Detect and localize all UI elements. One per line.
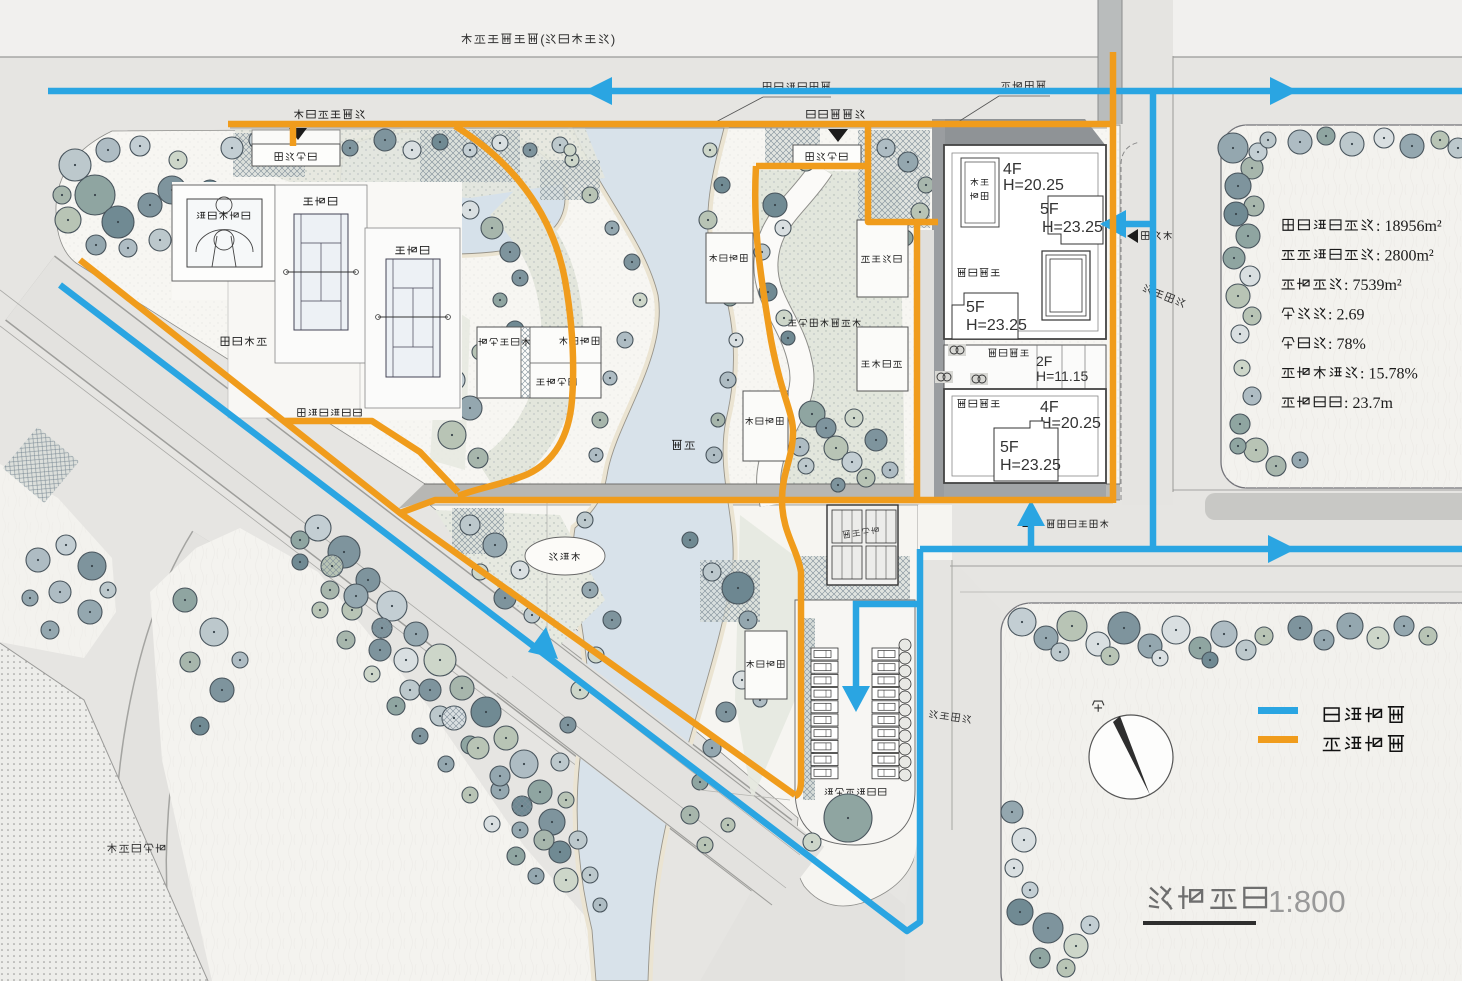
svg-text:: 18956m²: : 18956m² xyxy=(1376,218,1442,235)
svg-text:H=20.25: H=20.25 xyxy=(1003,177,1064,194)
svg-text:H=23.25: H=23.25 xyxy=(1000,457,1061,474)
svg-text:: 15.78%: : 15.78% xyxy=(1360,366,1418,383)
svg-text:H=11.15: H=11.15 xyxy=(1036,368,1088,384)
svg-text:4F: 4F xyxy=(1040,399,1059,416)
svg-text:: 23.7m: : 23.7m xyxy=(1344,395,1393,412)
svg-text:5F: 5F xyxy=(1040,201,1059,218)
svg-text:): ) xyxy=(611,32,615,47)
svg-text:: 2800m²: : 2800m² xyxy=(1376,248,1434,265)
svg-text:: 78%: : 78% xyxy=(1328,336,1366,353)
svg-text:1:800: 1:800 xyxy=(1268,884,1346,919)
svg-text:2F: 2F xyxy=(1036,353,1052,369)
svg-text:5F: 5F xyxy=(966,299,985,316)
svg-text:5F: 5F xyxy=(1000,439,1019,456)
svg-text:H=23.25: H=23.25 xyxy=(1042,219,1103,236)
svg-text:: 2.69: : 2.69 xyxy=(1328,307,1364,324)
svg-text:4F: 4F xyxy=(1003,161,1022,178)
svg-text:(: ( xyxy=(540,32,545,47)
svg-text:H=23.25: H=23.25 xyxy=(966,317,1027,334)
svg-text:: 7539m²: : 7539m² xyxy=(1344,277,1402,294)
